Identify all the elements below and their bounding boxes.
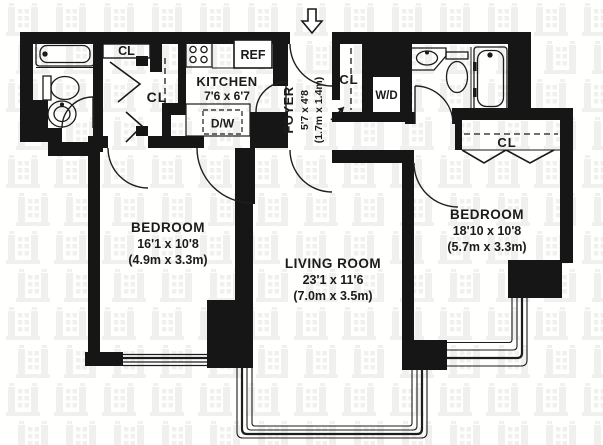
wall-hall-b: [148, 136, 204, 148]
closet-entry-label: CL: [339, 72, 358, 87]
wall-bedroom1-left: [88, 148, 100, 354]
column-bedroom1-se: [207, 300, 253, 368]
room-label-foyer: FOYER: [281, 86, 296, 133]
door-leaf-living: [250, 148, 255, 204]
room-metric-bedroom-1: (4.9m x 3.3m): [128, 253, 207, 267]
floor-plan: CL CL CL CL REF D/W W/D KITCHEN 7'6 x 6'…: [0, 0, 603, 445]
wall-bedroom1-bottom: [85, 352, 123, 366]
room-metric-foyer: (1.7m x 1.4m): [313, 77, 325, 144]
room-label-bedroom-2: BEDROOM: [450, 207, 524, 222]
wall-closet2-top: [452, 108, 573, 120]
column-bedroom2-se: [508, 260, 562, 298]
bathtub2-grab-bar: [473, 88, 477, 97]
floor-plan-canvas: CL CL CL CL REF D/W W/D KITCHEN 7'6 x 6'…: [0, 0, 603, 445]
pillar-closet-top: [150, 44, 162, 72]
wall-top-right: [332, 32, 531, 44]
wall-vestibule-bottom: [332, 150, 414, 163]
room-metric-living-room: (7.0m x 3.5m): [293, 289, 372, 303]
wall-kitchen-left-lower: [162, 113, 171, 140]
wall-wd-bottom: [362, 112, 412, 122]
wall-bath2-bottom-a: [405, 112, 415, 124]
bedroom2-label-group: BEDROOM 18'10 x 10'8 (5.7m x 3.3m): [447, 207, 526, 254]
wall-wd-top-mass: [362, 44, 412, 77]
room-label-bedroom-1: BEDROOM: [131, 220, 205, 235]
room-dims-bedroom-1: 16'1 x 10'8: [137, 237, 199, 251]
column-bedroom2-sw: [402, 340, 447, 370]
room-dims-bedroom-2: 18'10 x 10'8: [453, 224, 522, 238]
wall-right-upper: [518, 32, 531, 120]
sink2-faucet-icon: [426, 51, 429, 54]
bathtub2-grab-bar: [473, 62, 477, 71]
wall-closet2-left: [455, 112, 462, 150]
bathtub-faucet-icon: [43, 52, 47, 56]
closet-top-label: CL: [118, 44, 135, 58]
wall-bedroom2-left: [402, 150, 414, 342]
refrigerator-label: REF: [241, 48, 266, 62]
room-dims-foyer: 5'7 x 4'8: [299, 90, 311, 130]
wall-hall-a: [88, 136, 108, 148]
wall-bath1-bottom: [33, 128, 62, 142]
wall-kitchen-left-upper: [178, 43, 186, 105]
room-label-kitchen: KITCHEN: [196, 74, 257, 89]
room-label-living-room: LIVING ROOM: [285, 256, 381, 271]
washer-dryer-label: W/D: [375, 90, 397, 102]
dishwasher-label: D/W: [211, 117, 235, 131]
room-dims-kitchen: 7'6 x 6'7: [204, 89, 250, 103]
closet-hall-label: CL: [147, 89, 168, 105]
bathtub2-faucet-icon: [488, 53, 492, 57]
room-dims-living-room: 23'1 x 11'6: [303, 273, 364, 287]
wall-entry-closet-bottom: [332, 112, 362, 122]
bedroom1-label-group: BEDROOM 16'1 x 10'8 (4.9m x 3.3m): [128, 220, 207, 267]
wall-kitchen-right: [273, 43, 288, 86]
room-metric-bedroom-2: (5.7m x 3.3m): [447, 240, 526, 254]
wall-left-upper: [20, 32, 33, 102]
wall-right-lower: [560, 108, 573, 263]
kitchen-label-group: KITCHEN 7'6 x 6'7: [196, 74, 257, 103]
closet-bedroom2-label: CL: [497, 135, 516, 150]
sink-faucet-icon: [61, 103, 64, 106]
